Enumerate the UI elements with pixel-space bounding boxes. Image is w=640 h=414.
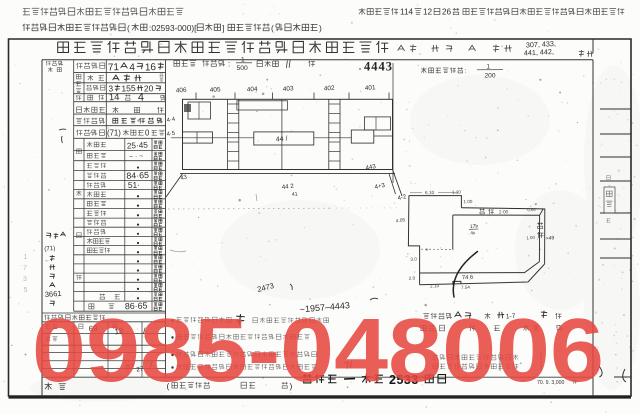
svg-text:114: 114 (400, 8, 413, 17)
svg-text:7: 7 (23, 265, 27, 272)
svg-text:1.10: 1.10 (452, 190, 462, 195)
svg-text:(: ( (127, 23, 130, 33)
svg-text:41: 41 (292, 191, 298, 198)
svg-text:14: 14 (109, 92, 120, 103)
svg-text:71: 71 (108, 62, 120, 73)
svg-text:): ) (319, 23, 322, 33)
svg-text:4: 4 (129, 62, 135, 73)
svg-text:1: 1 (24, 254, 28, 261)
svg-text::: : (228, 60, 230, 69)
svg-text:500: 500 (237, 65, 249, 72)
svg-text:155: 155 (121, 83, 136, 93)
svg-text:2.10: 2.10 (430, 283, 440, 289)
svg-text:401: 401 (365, 84, 377, 92)
svg-text:6.10: 6.10 (425, 190, 435, 196)
svg-text:12: 12 (423, 8, 433, 17)
svg-text:51·: 51· (128, 180, 140, 190)
svg-text:16: 16 (145, 62, 157, 73)
svg-text::: : (465, 68, 467, 75)
svg-text:3: 3 (23, 276, 27, 283)
svg-text:0: 0 (145, 129, 150, 138)
svg-text:74 6: 74 6 (462, 275, 474, 282)
svg-text:(71): (71) (44, 245, 56, 253)
svg-text:3661: 3661 (45, 289, 62, 299)
svg-text:4443: 4443 (364, 60, 393, 74)
svg-text:~ · ~: ~ · ~ (129, 153, 144, 160)
svg-text:26: 26 (442, 8, 452, 17)
svg-text:2·00: 2·00 (499, 209, 509, 214)
svg-text:441, 442,: 441, 442, (524, 47, 554, 58)
svg-text::02593-000)[: :02593-000)[ (149, 23, 197, 33)
svg-text:3.0: 3.0 (410, 256, 417, 262)
svg-text:25·45: 25·45 (127, 140, 149, 150)
svg-text:4: 4 (138, 92, 145, 104)
svg-text:20: 20 (144, 83, 154, 93)
svg-text:44 /: 44 / (276, 135, 288, 143)
svg-text:5: 5 (24, 287, 28, 294)
svg-text:1: 1 (487, 63, 491, 70)
svg-text:]: ] (222, 23, 224, 33)
svg-text:405: 405 (210, 86, 222, 94)
svg-text:7.54: 7.54 (461, 285, 471, 290)
svg-text:1.00: 1.00 (463, 199, 473, 204)
svg-text:(: ( (271, 23, 274, 33)
svg-text:0985-048006: 0985-048006 (32, 301, 604, 401)
svg-text:403: 403 (283, 85, 295, 93)
svg-text:402: 402 (324, 85, 336, 93)
svg-text:406: 406 (176, 87, 188, 95)
svg-text:44 2: 44 2 (281, 183, 294, 191)
svg-text:(71): (71) (107, 129, 121, 138)
svg-text:2.0: 2.0 (409, 275, 416, 281)
